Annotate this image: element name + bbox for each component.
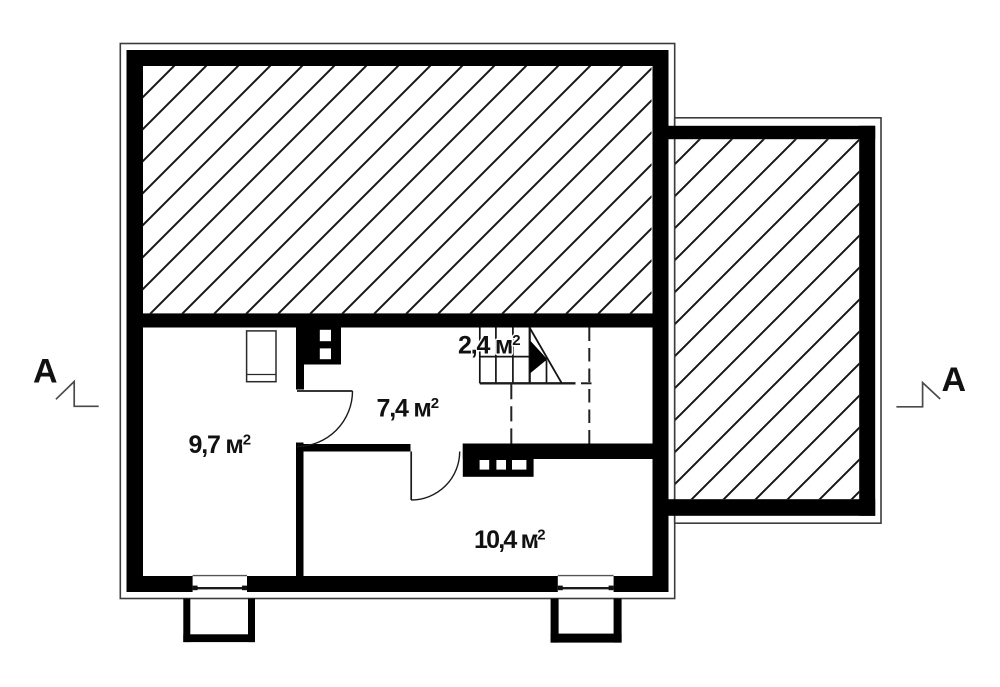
svg-text:7,4 м2: 7,4 м2 <box>377 395 439 423</box>
svg-text:10,4 м2: 10,4 м2 <box>474 526 545 554</box>
svg-text:A: A <box>33 352 58 390</box>
svg-text:2,4 м2: 2,4 м2 <box>458 332 520 360</box>
svg-text:9,7 м2: 9,7 м2 <box>189 431 251 459</box>
svg-text:A: A <box>942 361 967 399</box>
